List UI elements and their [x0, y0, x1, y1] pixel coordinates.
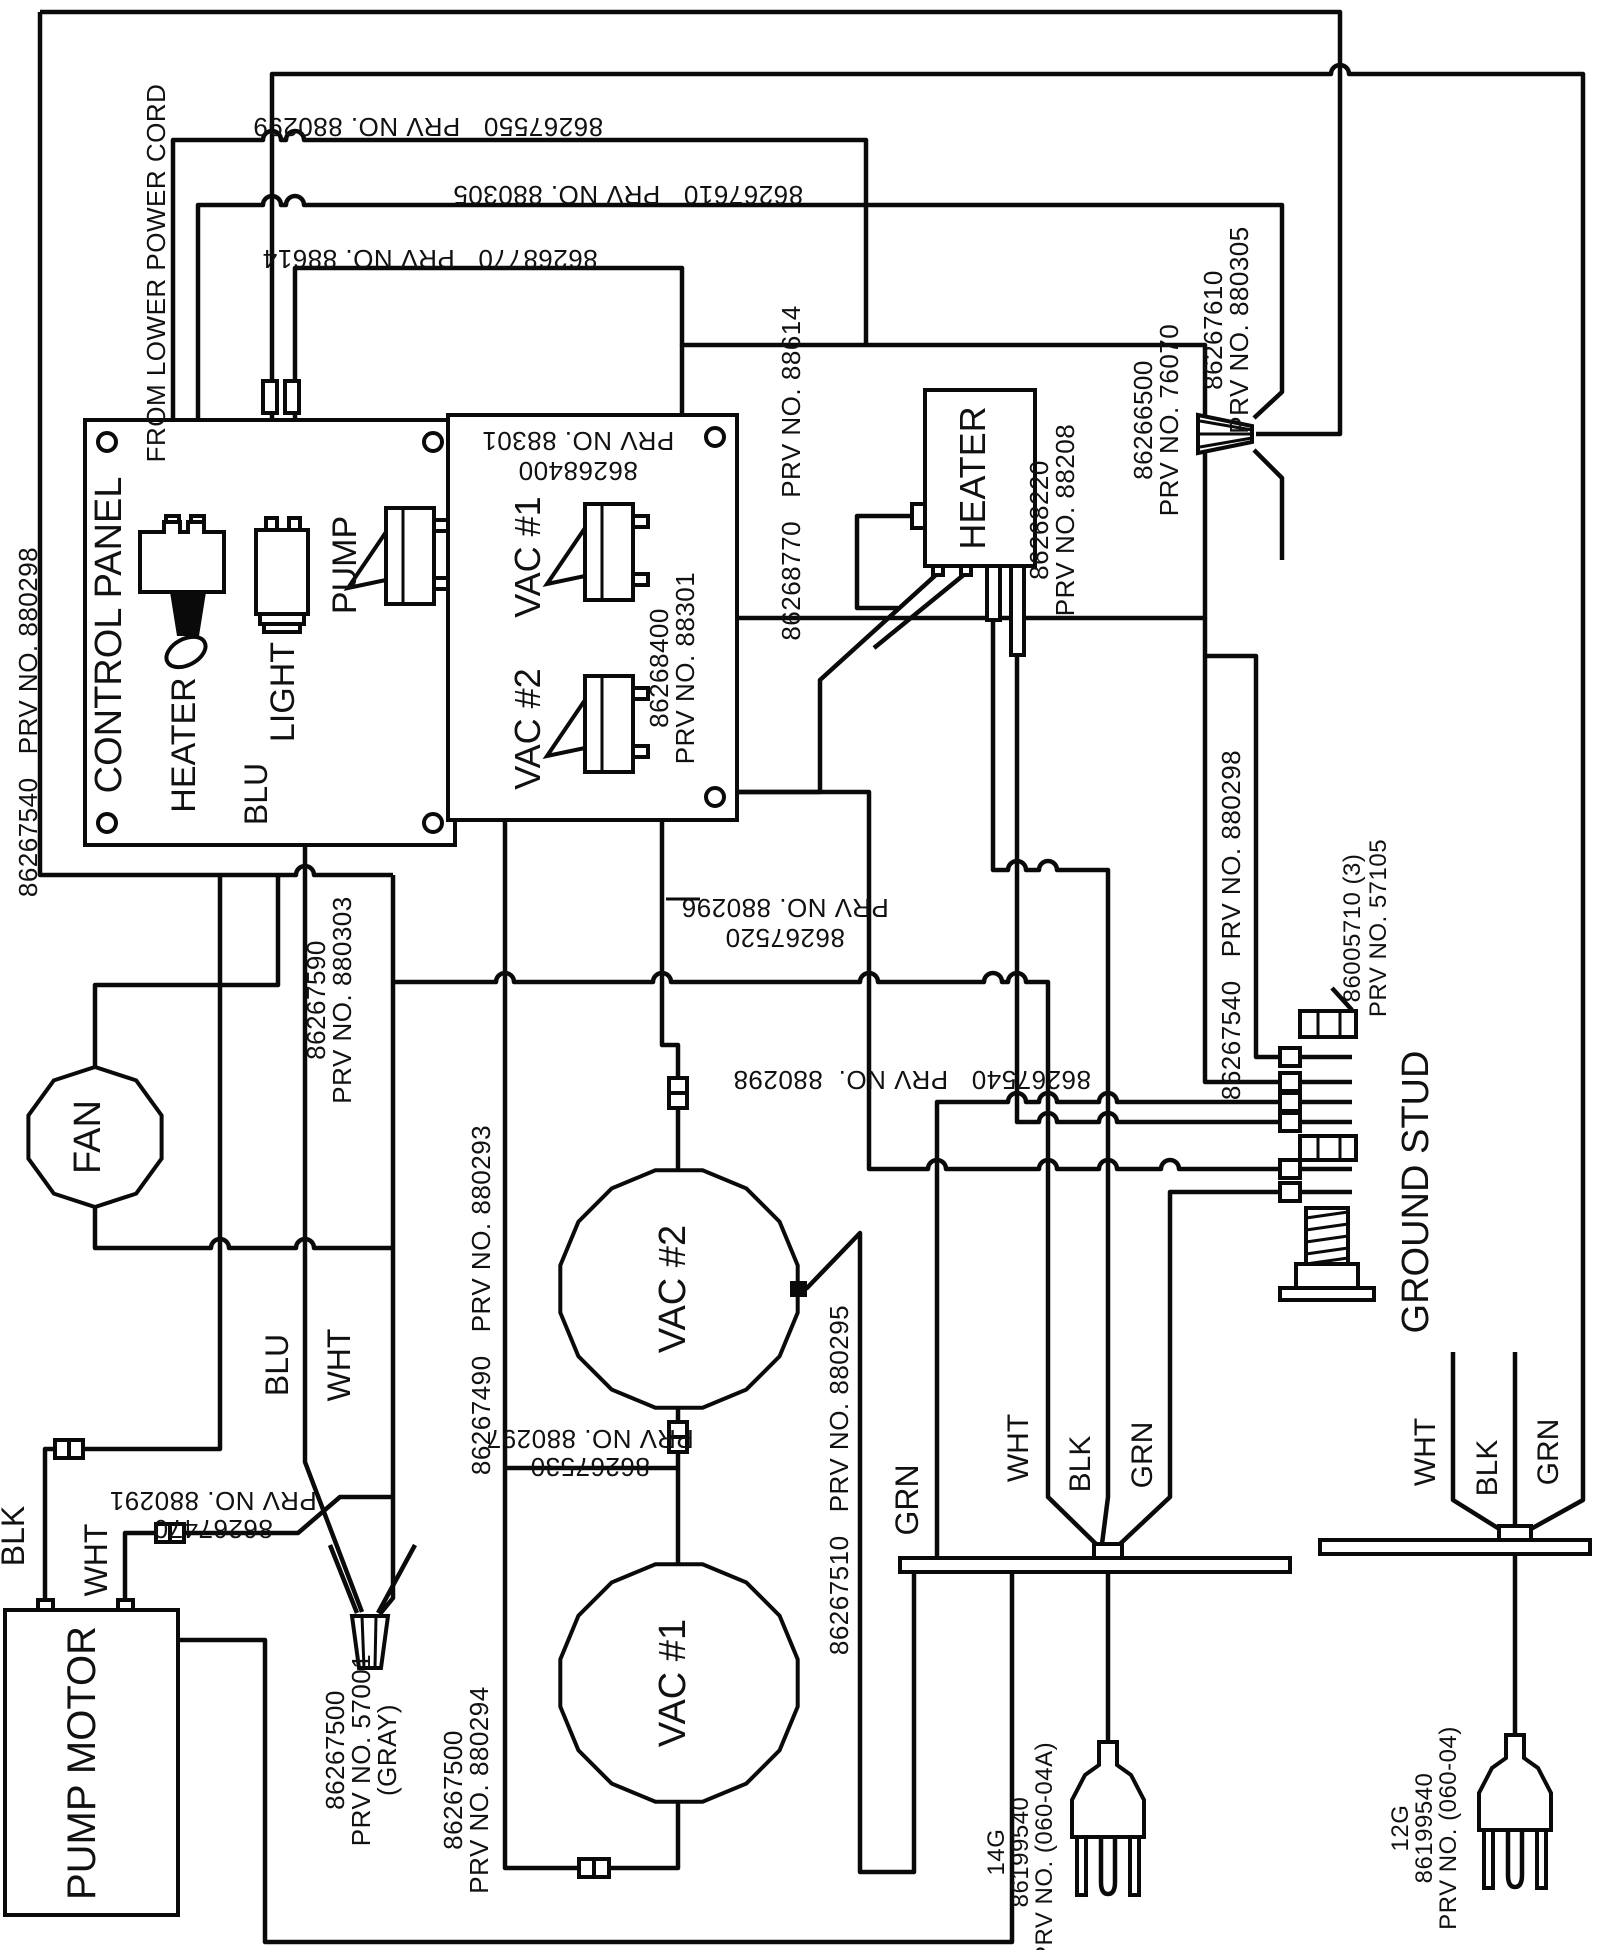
- screw-icon: [424, 433, 442, 451]
- label-heater-box: HEATER: [952, 406, 993, 549]
- ring-terminals: [1280, 1048, 1352, 1201]
- inline-connector-icon: [579, 1859, 594, 1877]
- label-pn-880298-left: 86267540 PRV NO. 880298: [13, 547, 43, 897]
- ground-bar-left: [900, 1558, 1290, 1572]
- vac2-terminal: [790, 1281, 807, 1297]
- label-control-panel: CONTROL PANEL: [88, 477, 130, 794]
- label-pn-57105-2: PRV NO. 57105: [1365, 839, 1392, 1017]
- label-plug14-1: 14G: [983, 1829, 1010, 1876]
- label-pn-880294-2: PRV NO. 880294: [464, 1686, 494, 1893]
- wire-heater-diag1: [737, 573, 938, 792]
- wire-heater-stub: [857, 516, 918, 608]
- screw-icon: [98, 814, 116, 832]
- indicator-light: [256, 530, 308, 614]
- label-pn-88301a-1: 86268400: [518, 456, 638, 486]
- label-pump: PUMP: [326, 516, 364, 614]
- schematic-canvas: FROM LOWER POWER CORD 86267550 PRV NO. 8…: [0, 0, 1600, 1950]
- label-pn-880299: 86267550 PRV NO. 880299: [253, 112, 603, 142]
- label-pn-880297-2: PRV NO. 880297: [486, 1424, 693, 1454]
- inline-connector-icon: [594, 1859, 609, 1877]
- label-vac1-switch: VAC #1: [507, 496, 548, 617]
- label-wht-pump: WHT: [78, 1524, 114, 1597]
- bar-pad: [1094, 1544, 1122, 1558]
- bar-pad: [1499, 1526, 1531, 1540]
- label-pn-88301b-2: PRV NO. 88301: [670, 572, 700, 764]
- power-plug-14g: [1072, 1742, 1144, 1895]
- label-blk-left: BLK: [1064, 1436, 1097, 1493]
- terminal-tab: [912, 504, 925, 528]
- label-grn-left: GRN: [1126, 1422, 1159, 1489]
- terminal-tab: [118, 1600, 133, 1610]
- ground-bar-right: [1320, 1540, 1590, 1554]
- label-blu-panel: BLU: [238, 763, 274, 825]
- label-plug12-3: PRV NO. (060-04): [1435, 1726, 1462, 1930]
- label-vac2-switch: VAC #2: [507, 668, 548, 789]
- inline-connector-icon: [669, 1093, 687, 1108]
- screw-icon: [98, 433, 116, 451]
- screw-icon: [706, 788, 724, 806]
- label-pn-88301a-2: PRV NO. 88301: [482, 426, 674, 456]
- label-heater-switch: HEATER: [165, 677, 203, 812]
- screw-icon: [706, 428, 724, 446]
- label-pn-57105-1: 86005710 (3): [1339, 854, 1366, 1003]
- label-pn-76070-2: PRV NO. 76070: [1154, 324, 1184, 516]
- terminal-housing: [1300, 1011, 1356, 1037]
- label-plug12-1: 12G: [1387, 1805, 1414, 1852]
- ring-terminal-icon: [1280, 1073, 1300, 1091]
- label-pn-880291-2: PRV NO. 880291: [109, 1486, 316, 1516]
- wire-fan-riser: [95, 875, 278, 1067]
- wire-nut-stub1: [330, 1545, 357, 1613]
- screw-icon: [424, 814, 442, 832]
- heater-toggle-switch[interactable]: [140, 522, 224, 592]
- label-pn-880296-1: 86267520: [725, 923, 845, 953]
- label-pn-880305b-2: PRV NO. 880305: [1224, 226, 1254, 433]
- wire-nut-right-down: [1254, 450, 1282, 560]
- label-blk-pump: BLK: [0, 1506, 31, 1566]
- label-pn-88614v: 86268770 PRV NO. 88614: [776, 305, 806, 640]
- terminal-tab: [961, 566, 971, 575]
- label-vac1: VAC #1: [652, 1619, 694, 1747]
- wiring-diagram: FROM LOWER POWER CORD 86267550 PRV NO. 8…: [0, 0, 1600, 1950]
- label-pn-57001-3: (GRAY): [372, 1704, 402, 1796]
- ring-terminal-icon: [1280, 1048, 1300, 1066]
- label-pn-880295: 86267510 PRV NO. 880295: [824, 1305, 854, 1655]
- wire-heater-diag2: [874, 573, 966, 648]
- stud-base: [1280, 1288, 1374, 1300]
- ring-terminal-icon: [1280, 1113, 1300, 1131]
- label-from-power-cord: FROM LOWER POWER CORD: [141, 84, 171, 463]
- wire-fan-bottom: [95, 1207, 393, 1248]
- wire-880295-grn: [806, 1233, 914, 1872]
- label-pump-motor: PUMP MOTOR: [60, 1626, 104, 1900]
- label-grn-mid: GRN: [889, 1464, 925, 1535]
- label-wht-right: WHT: [1409, 1418, 1442, 1486]
- ground-stud-assembly: [1280, 988, 1374, 1300]
- label-pn-880298-mid: 86267540 PRV NO. 880298: [733, 1065, 1091, 1095]
- label-grn-right: GRN: [1532, 1419, 1565, 1486]
- label-plug12-2: 86199540: [1411, 1773, 1438, 1884]
- label-pn-880305: 86267610 PRV NO. 880305: [453, 180, 803, 210]
- label-ground-stud: GROUND STUD: [1395, 1051, 1437, 1334]
- inline-connector-icon: [669, 1078, 687, 1093]
- heater-pin: [987, 566, 1000, 620]
- label-wht-left: WHT: [1002, 1414, 1035, 1482]
- wire-nut-stub2: [378, 1545, 415, 1613]
- power-plug-12g: [1479, 1735, 1551, 1888]
- terminal-tab: [933, 566, 943, 575]
- label-blk-right: BLK: [1471, 1440, 1504, 1497]
- terminal-housing: [1300, 1136, 1356, 1160]
- label-pn-88614: 86268770 PRV NO. 88614: [262, 244, 597, 274]
- label-pn-880296-2: PRV NO. 880296: [681, 893, 888, 923]
- wire-terminal6-grn: [1120, 1192, 1280, 1544]
- terminal-tab: [38, 1600, 53, 1610]
- light-base: [264, 624, 300, 632]
- label-vac2: VAC #2: [652, 1225, 694, 1353]
- inline-connector-icon: [285, 381, 299, 413]
- label-pn-88208-2: PRV NO. 88208: [1050, 424, 1080, 616]
- ring-terminal-icon: [1280, 1183, 1300, 1201]
- wire-wht-main: [380, 875, 393, 1614]
- label-pn-880293: 86267490 PRV NO. 880293: [466, 1125, 496, 1475]
- label-pn-880298-gs: 86267540 PRV NO. 880298: [1216, 750, 1246, 1100]
- heater-pin: [1011, 566, 1024, 655]
- label-wht-mid: WHT: [321, 1329, 357, 1402]
- inline-connector-icon: [69, 1440, 83, 1458]
- ground-stud-bolt: [1280, 1208, 1374, 1300]
- label-plug14-2: 86199540: [1007, 1797, 1034, 1908]
- label-pn-880303-2: PRV NO. 880303: [327, 896, 357, 1103]
- ring-terminal-icon: [1280, 1093, 1300, 1111]
- inline-connector-icon: [263, 381, 277, 413]
- label-plug14-3: PRV NO. (060-04A): [1031, 1742, 1058, 1950]
- label-pn-880297-1: 86267530: [530, 1452, 650, 1482]
- label-light: LIGHT: [264, 642, 302, 742]
- label-blu-mid: BLU: [259, 1334, 295, 1396]
- inline-connector-icon: [55, 1440, 69, 1458]
- ring-terminal-icon: [1280, 1160, 1300, 1178]
- label-pn-880291-1: 86267470: [153, 1514, 273, 1544]
- label-fan: FAN: [67, 1100, 109, 1174]
